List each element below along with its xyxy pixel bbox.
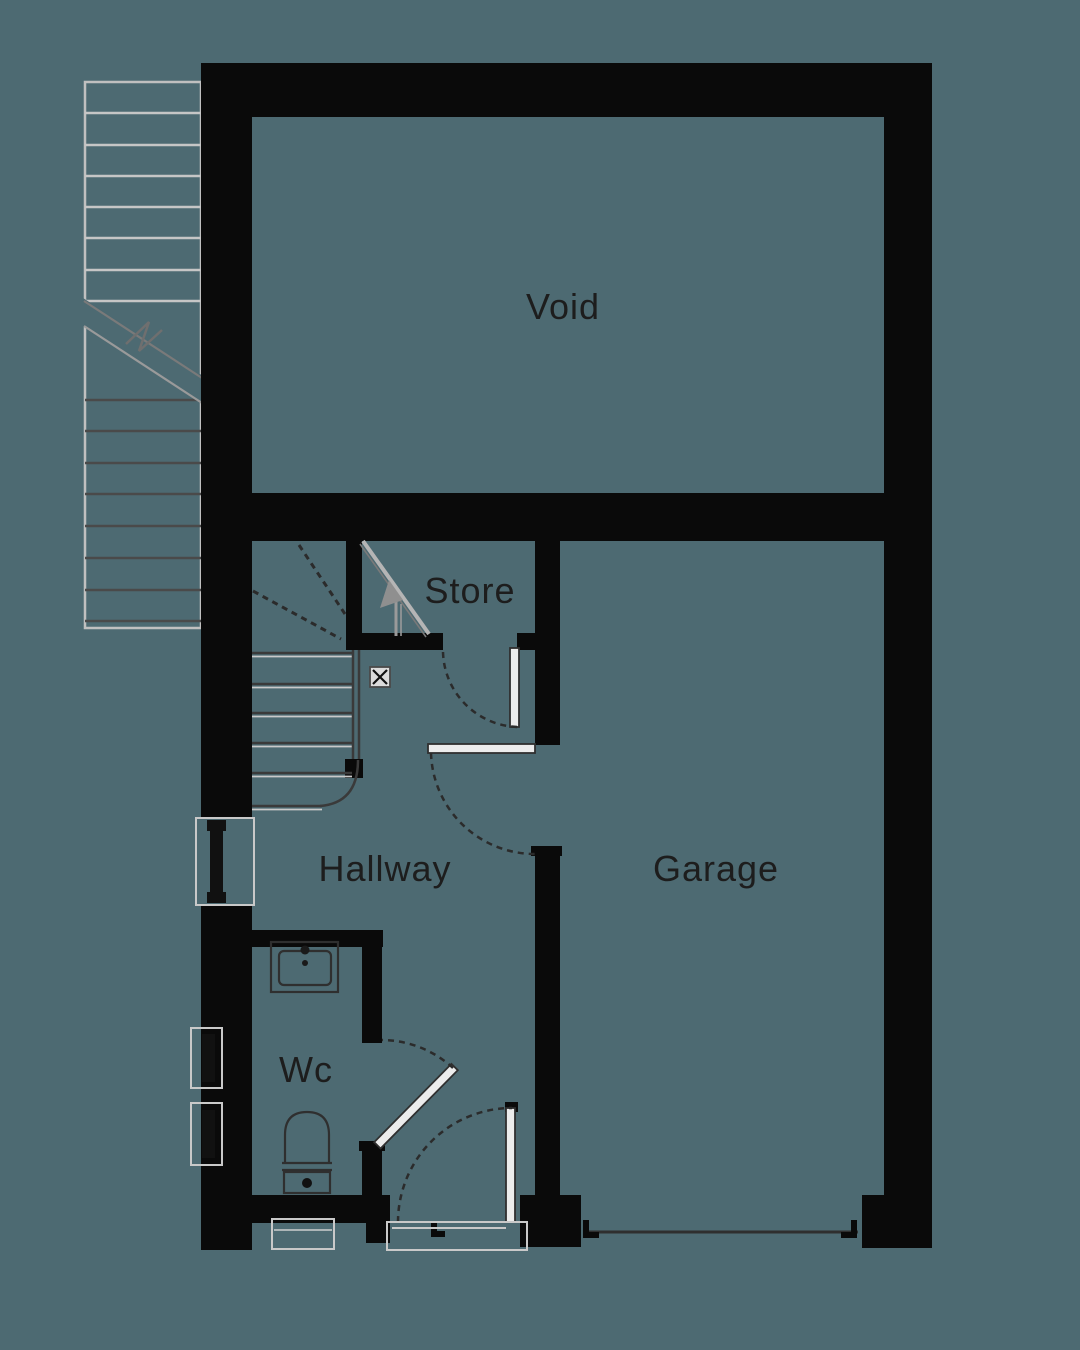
window-opening <box>201 818 252 905</box>
wall-top <box>201 63 932 117</box>
wall-wc-right-upper <box>362 930 382 1043</box>
floor-plan-drawing: Void Store Hallway Garage Wc <box>0 0 1080 1350</box>
meter-box-1-bar <box>202 1034 215 1082</box>
sink-tap-icon <box>301 946 310 955</box>
room-label-hallway: Hallway <box>318 848 451 889</box>
toilet-flush-icon <box>302 1178 312 1188</box>
room-label-garage: Garage <box>653 848 779 889</box>
garage-opening-hook-right-h <box>841 1232 857 1238</box>
wall-garage-lower <box>535 853 560 1195</box>
window-cap-bottom <box>207 892 226 903</box>
room-label-void: Void <box>526 286 600 327</box>
front-door-leaf <box>506 1108 515 1222</box>
store-door-leaf <box>510 648 519 727</box>
wall-garage-upper <box>535 541 560 745</box>
room-label-store: Store <box>424 570 515 611</box>
wall-wc-right-stub <box>362 1143 382 1195</box>
stair-newel-post <box>345 759 363 778</box>
room-label-wc: Wc <box>279 1049 333 1090</box>
wall-void-bottom <box>201 493 932 541</box>
window-pane <box>210 824 223 900</box>
meter-box-2-bar <box>202 1110 215 1158</box>
wall-right <box>884 63 932 1195</box>
wall-right-bottom-block <box>862 1195 932 1248</box>
front-door-stop-h <box>431 1231 445 1237</box>
window-cap-top <box>207 820 226 831</box>
electrical-socket-icon <box>370 667 390 687</box>
sink-drain-icon <box>302 960 308 966</box>
wall-bottom-left-corner <box>201 1195 252 1250</box>
garage-door-leaf <box>428 744 535 753</box>
garage-opening-hook-left-h <box>583 1232 599 1238</box>
floor-plan-page: Void Store Hallway Garage Wc <box>0 0 1080 1350</box>
wall-frontdoor-block <box>520 1195 581 1247</box>
